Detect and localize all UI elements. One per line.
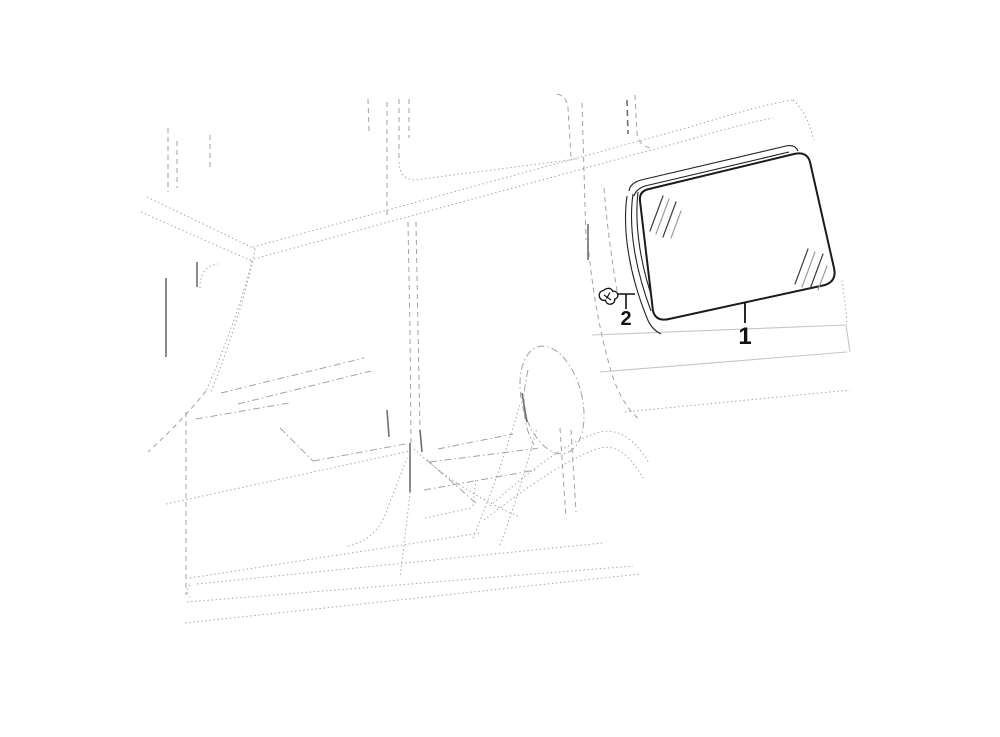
quarter-window-glass [612, 135, 843, 334]
rear-tub-panel-lines [592, 325, 850, 372]
parts-diagram-canvas: 2 1 [0, 0, 1000, 737]
callout-2[interactable]: 2 [618, 294, 635, 330]
callout-2-label[interactable]: 2 [620, 308, 631, 330]
body-accent-lines [166, 100, 628, 492]
glass-retainer-clip [599, 288, 618, 304]
callout-2-leader [618, 294, 635, 309]
callout-1-label[interactable]: 1 [738, 323, 751, 350]
